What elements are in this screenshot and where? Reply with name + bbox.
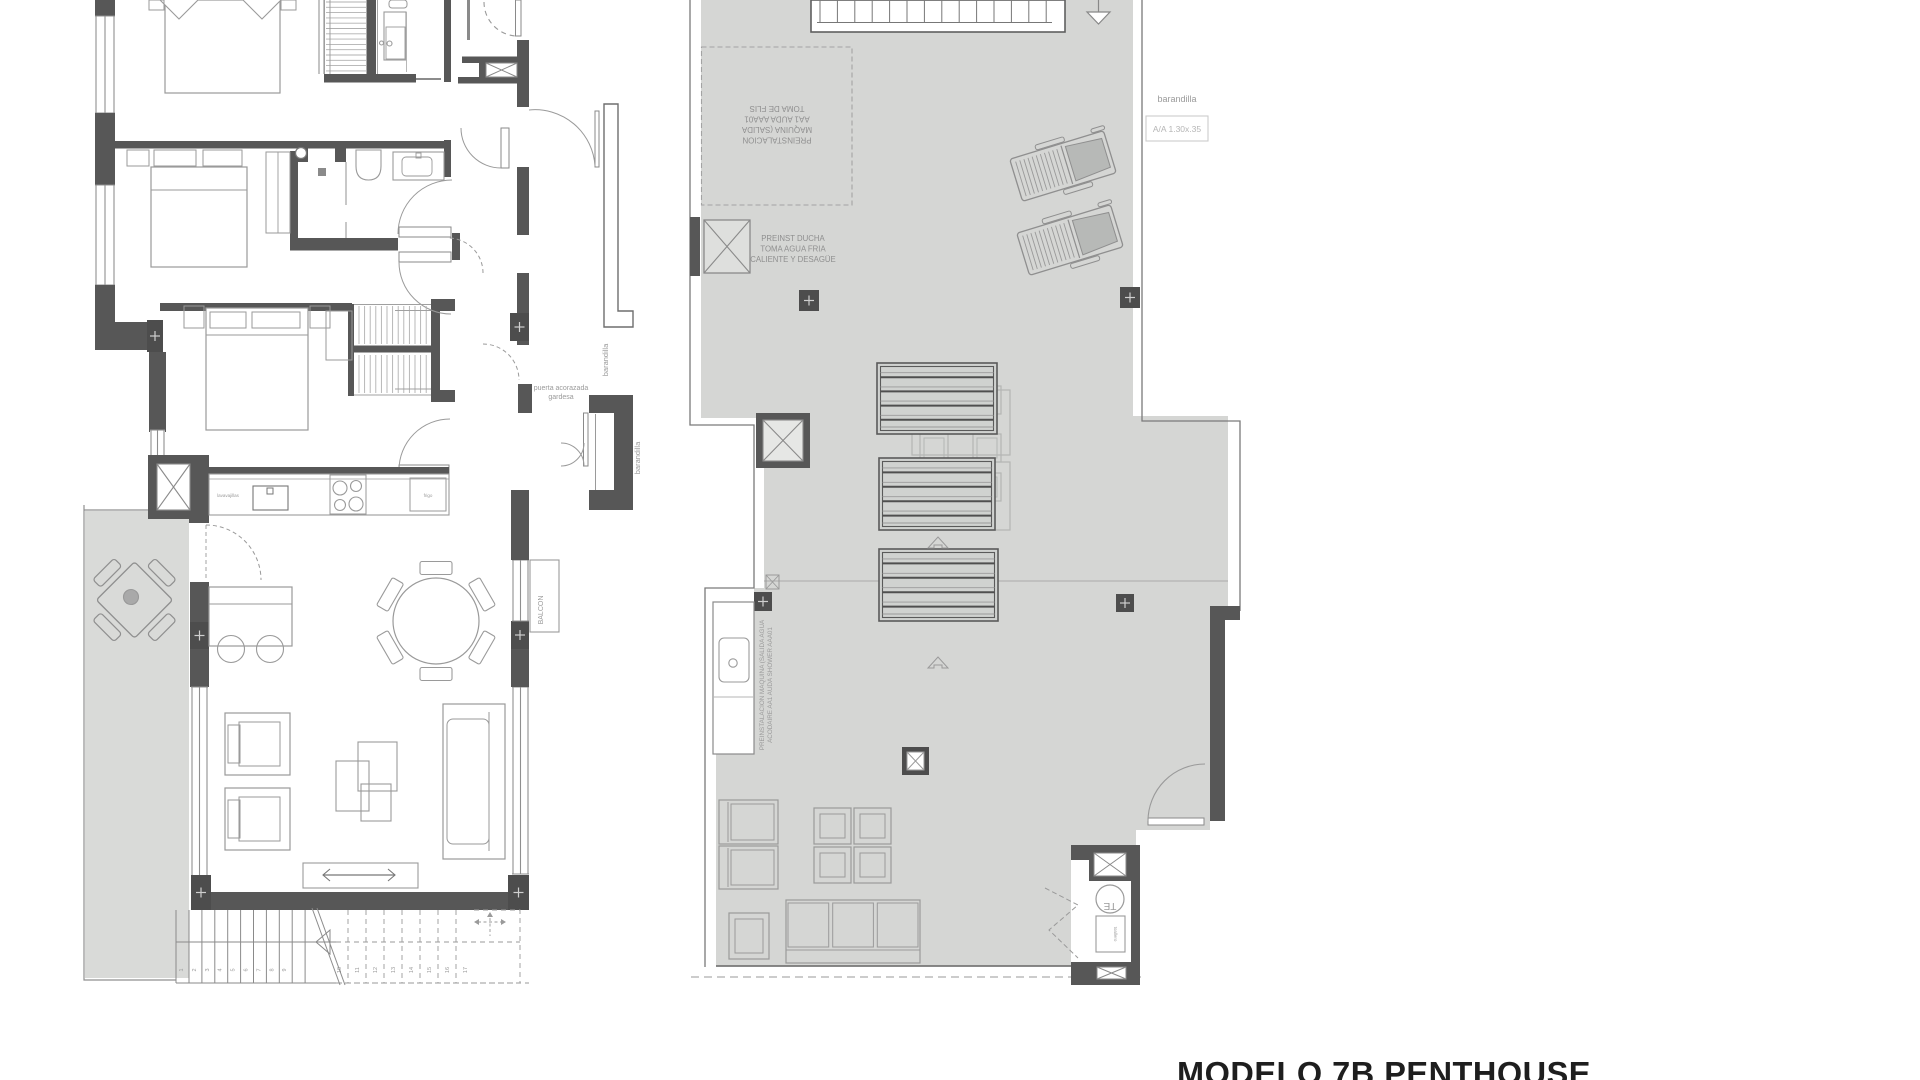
svg-text:5: 5 [231, 968, 237, 971]
svg-text:puerta acorazada: puerta acorazada [534, 385, 589, 392]
svg-text:14: 14 [409, 967, 415, 973]
svg-text:frigo: frigo [424, 493, 433, 498]
svg-text:13: 13 [391, 967, 397, 973]
svg-text:6: 6 [244, 968, 250, 971]
svg-text:barandilla: barandilla [1157, 94, 1196, 104]
svg-text:9: 9 [282, 968, 288, 971]
svg-text:TE: TE [1103, 900, 1116, 911]
svg-text:CALIENTE Y DESAGÜE: CALIENTE Y DESAGÜE [750, 255, 836, 264]
svg-text:1: 1 [179, 968, 185, 971]
svg-text:2: 2 [192, 968, 198, 971]
svg-text:lavavajillas: lavavajillas [217, 493, 240, 498]
svg-text:MODELO 7B PENTHOUSE: MODELO 7B PENTHOUSE [1177, 1056, 1591, 1080]
svg-text:16: 16 [445, 967, 451, 973]
svg-text:A/A 1.30x.35: A/A 1.30x.35 [1153, 124, 1201, 134]
svg-text:toallero: toallero [1113, 927, 1118, 942]
svg-text:PREINSTALACION: PREINSTALACION [742, 136, 811, 145]
svg-text:3: 3 [205, 968, 211, 971]
svg-text:ACODAIRE AA1 AUDA SHOWER AAA01: ACODAIRE AA1 AUDA SHOWER AAA01 [767, 627, 774, 743]
svg-text:barandilla: barandilla [601, 343, 610, 376]
svg-text:BALCON: BALCON [538, 596, 545, 625]
svg-text:PREINST DUCHA: PREINST DUCHA [761, 234, 825, 243]
svg-text:12: 12 [373, 967, 379, 973]
svg-text:TOMA DE FLIS: TOMA DE FLIS [750, 104, 805, 113]
svg-text:7: 7 [256, 968, 262, 971]
svg-text:17: 17 [463, 967, 469, 973]
svg-text:barandilla: barandilla [633, 441, 642, 474]
svg-text:AA1 AUDA AAA01: AA1 AUDA AAA01 [744, 115, 810, 124]
svg-text:MAQUINA (SALIDA: MAQUINA (SALIDA [741, 125, 812, 134]
svg-text:gardesa: gardesa [548, 394, 573, 401]
svg-text:TOMA AGUA FRIA: TOMA AGUA FRIA [760, 245, 826, 254]
svg-text:15: 15 [427, 967, 433, 973]
svg-text:PREINSTALACION MAQUINA (SALIDA: PREINSTALACION MAQUINA (SALIDA AGUA [759, 619, 766, 750]
svg-text:4: 4 [218, 968, 224, 971]
svg-text:11: 11 [355, 967, 361, 973]
svg-text:8: 8 [269, 968, 275, 971]
